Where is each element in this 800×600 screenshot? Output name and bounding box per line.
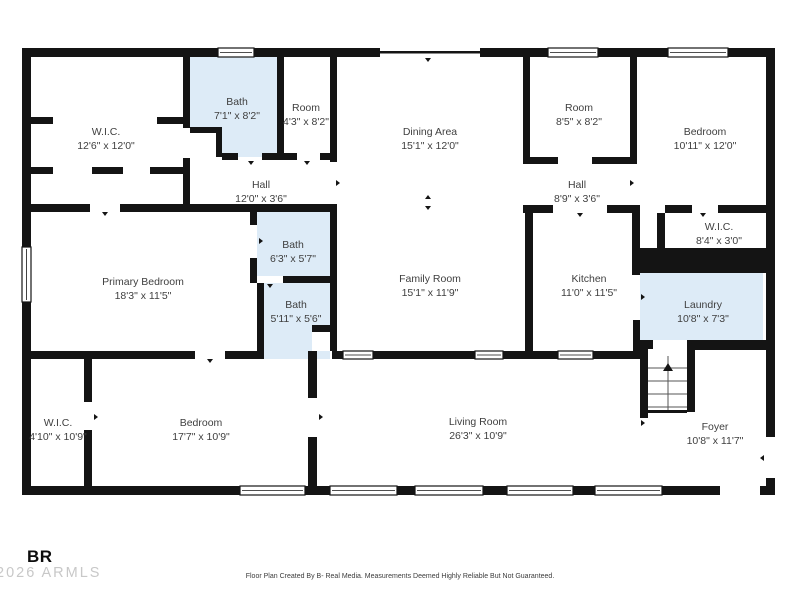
- room-label-wic-bottom: W.I.C. 4'10" x 10'9": [29, 417, 87, 444]
- stairs: [648, 356, 687, 412]
- room-name: Bedroom: [674, 126, 737, 140]
- room-name: Dining Area: [401, 126, 459, 140]
- br-logo: BR: [27, 547, 53, 567]
- room-label-bedroom-top-right: Bedroom 10'11" x 12'0": [674, 126, 737, 153]
- window-glyphs: [22, 48, 728, 495]
- room-label-dining-area: Dining Area 15'1" x 12'0": [401, 126, 459, 153]
- room-label-hall-right: Hall 8'9" x 3'6": [554, 179, 600, 206]
- room-label-wic-top-left: W.I.C. 12'6" x 12'0": [77, 126, 135, 153]
- room-name: Room: [556, 102, 602, 116]
- room-name: Bath: [270, 239, 316, 253]
- room-label-kitchen: Kitchen 11'0" x 11'5": [561, 273, 617, 300]
- room-label-wic-right: W.I.C. 8'4" x 3'0": [696, 221, 742, 248]
- room-name: W.I.C.: [29, 417, 87, 431]
- room-dims: 6'3" x 5'7": [270, 253, 316, 267]
- room-dims: 18'3" x 11'5": [102, 290, 184, 304]
- disclaimer-text: Floor Plan Created By B- Real Media. Mea…: [246, 573, 555, 580]
- room-dims: 17'7" x 10'9": [172, 431, 230, 445]
- room-dims: 4'10" x 10'9": [29, 431, 87, 445]
- room-dims: 11'0" x 11'5": [561, 287, 617, 301]
- room-name: Bath: [271, 299, 322, 313]
- room-name: Room: [283, 102, 329, 116]
- room-dims: 12'0" x 3'6": [235, 193, 287, 207]
- room-name: Laundry: [677, 299, 729, 313]
- room-dims: 10'8" x 7'3": [677, 313, 729, 327]
- floor-plan-page: W.I.C. 12'6" x 12'0" Bath 7'1" x 8'2" Ro…: [0, 0, 800, 600]
- room-label-room-top-right: Room 8'5" x 8'2": [556, 102, 602, 129]
- room-dims: 10'8" x 11'7": [687, 435, 744, 449]
- room-name: Family Room: [399, 273, 461, 287]
- room-label-hall-left: Hall 12'0" x 3'6": [235, 179, 287, 206]
- room-label-bath-mid: Bath 6'3" x 5'7": [270, 239, 316, 266]
- room-dims: 12'6" x 12'0": [77, 140, 135, 154]
- room-dims: 8'5" x 8'2": [556, 116, 602, 130]
- room-dims: 7'1" x 8'2": [214, 110, 260, 124]
- room-dims: 15'1" x 12'0": [401, 140, 459, 154]
- room-dims: 8'9" x 3'6": [554, 193, 600, 207]
- room-dims: 15'1" x 11'9": [399, 287, 461, 301]
- room-name: W.I.C.: [77, 126, 135, 140]
- room-name: Bath: [214, 96, 260, 110]
- room-label-family-room: Family Room 15'1" x 11'9": [399, 273, 461, 300]
- room-label-living-room: Living Room 26'3" x 10'9": [449, 416, 507, 443]
- room-label-laundry: Laundry 10'8" x 7'3": [677, 299, 729, 326]
- room-name: Hall: [235, 179, 287, 193]
- room-label-primary-bedroom: Primary Bedroom 18'3" x 11'5": [102, 276, 184, 303]
- room-dims: 26'3" x 10'9": [449, 430, 507, 444]
- armls-watermark: 2026 ARMLS: [0, 565, 101, 581]
- stairs-up-arrow: [663, 363, 673, 380]
- walls-layer: [22, 48, 775, 495]
- room-dims: 4'3" x 8'2": [283, 116, 329, 130]
- room-dims: 10'11" x 12'0": [674, 140, 737, 154]
- room-label-bath-top: Bath 7'1" x 8'2": [214, 96, 260, 123]
- room-label-bath-lower: Bath 5'11" x 5'6": [271, 299, 322, 326]
- room-label-foyer: Foyer 10'8" x 11'7": [687, 421, 744, 448]
- room-dims: 5'11" x 5'6": [271, 313, 322, 327]
- room-name: Foyer: [687, 421, 744, 435]
- room-name: Kitchen: [561, 273, 617, 287]
- room-dims: 8'4" x 3'0": [696, 235, 742, 249]
- room-name: Bedroom: [172, 417, 230, 431]
- room-name: W.I.C.: [696, 221, 742, 235]
- room-label-bedroom-bottom: Bedroom 17'7" x 10'9": [172, 417, 230, 444]
- room-label-room-top-left: Room 4'3" x 8'2": [283, 102, 329, 129]
- room-name: Living Room: [449, 416, 507, 430]
- room-name: Hall: [554, 179, 600, 193]
- room-name: Primary Bedroom: [102, 276, 184, 290]
